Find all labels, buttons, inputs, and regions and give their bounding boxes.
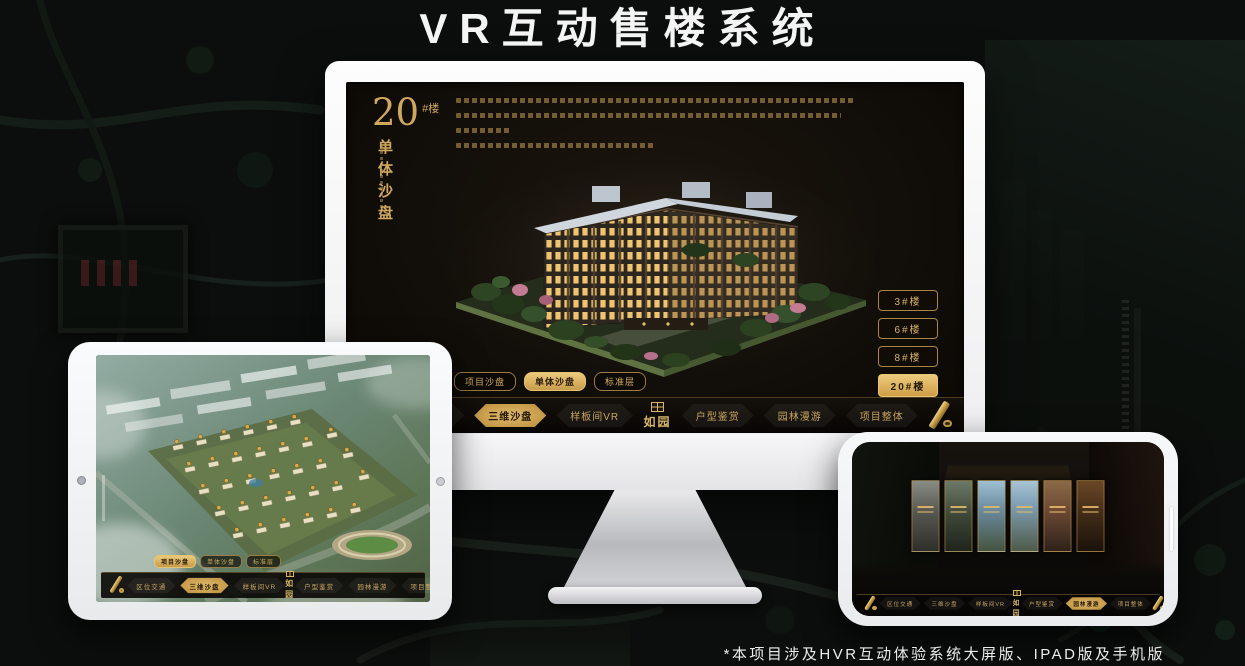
nav-group-left: 区位交通三维沙盘样板间VR bbox=[127, 577, 285, 594]
nav-item[interactable]: 户型鉴赏 bbox=[1021, 597, 1062, 611]
background-plaque-art bbox=[58, 225, 188, 333]
floor-title-row: 20 #楼 bbox=[372, 94, 439, 131]
description-text-block bbox=[456, 98, 876, 158]
phone-side-button[interactable] bbox=[1170, 507, 1173, 551]
logo-text: 如园 bbox=[1013, 597, 1022, 616]
floor-number: 20 bbox=[372, 94, 419, 131]
nav-item[interactable]: 园林漫游 bbox=[1066, 597, 1107, 611]
promo-banner: VR互动售楼系统 20 #楼 单体沙盘 bbox=[0, 0, 1245, 666]
sub-tab[interactable]: 标准层 bbox=[246, 555, 281, 568]
nav-item[interactable]: 三维沙盘 bbox=[180, 577, 228, 594]
nav-item[interactable]: 样板间VR bbox=[556, 403, 633, 428]
floor-subtitle: 单体沙盘 bbox=[374, 139, 395, 227]
scene-panel[interactable] bbox=[1011, 480, 1039, 552]
nav-group-left: 区位交通三维沙盘样板间VR bbox=[879, 597, 1012, 611]
background-photo-art bbox=[985, 40, 1245, 440]
seal-icon bbox=[286, 571, 294, 578]
logo-text: 如园 bbox=[285, 578, 295, 600]
sub-tab[interactable]: 标准层 bbox=[594, 372, 646, 391]
scene-panel[interactable] bbox=[912, 480, 940, 552]
sub-tab[interactable]: 项目沙盘 bbox=[454, 372, 516, 391]
nav-item[interactable]: 户型鉴赏 bbox=[295, 577, 343, 594]
nav-item[interactable]: 区位交通 bbox=[879, 597, 920, 611]
nav-item[interactable]: 项目整体 bbox=[846, 403, 918, 428]
nav-item[interactable]: 三维沙盘 bbox=[474, 403, 546, 428]
footnote: *本项目涉及HVR互动体验系统大屏版、IPAD版及手机版 bbox=[724, 643, 1165, 664]
nav-group-right: 户型鉴赏园林漫游项目整体 bbox=[1021, 597, 1151, 611]
nav-item[interactable]: 三维沙盘 bbox=[924, 597, 965, 611]
main-navigation: 区位交通三维沙盘样板间VR 如园 户型鉴赏园林漫游项目整体 bbox=[856, 594, 1160, 612]
tablet-device: 项目沙盘单体沙盘标准层 区位交通三维沙盘样板间VR 如园 户型鉴赏园林漫游项目整… bbox=[68, 342, 452, 620]
nav-item[interactable]: 项目整体 bbox=[401, 577, 430, 594]
ruyuan-logo: 如园 bbox=[1013, 590, 1022, 616]
monitor-base bbox=[548, 587, 762, 604]
scroll-ornament-right[interactable] bbox=[928, 403, 956, 428]
main-navigation: 区位交通三维沙盘样板间VR 如园 户型鉴赏园林漫游项目整体 bbox=[101, 572, 425, 598]
stadium bbox=[332, 530, 412, 560]
scene-panel-strip bbox=[912, 480, 1105, 552]
scene-panel[interactable] bbox=[1077, 480, 1105, 552]
seal-icon bbox=[1013, 590, 1020, 596]
scroll-ornament-left[interactable] bbox=[109, 577, 127, 593]
scene-panel[interactable] bbox=[1044, 480, 1072, 552]
scene-panel[interactable] bbox=[978, 480, 1006, 552]
nav-item[interactable]: 样板间VR bbox=[234, 577, 286, 594]
nav-item[interactable]: 区位交通 bbox=[127, 577, 175, 594]
seal-icon bbox=[651, 402, 664, 412]
nav-item[interactable]: 园林漫游 bbox=[764, 403, 836, 428]
sub-tab[interactable]: 单体沙盘 bbox=[200, 555, 242, 568]
building-selector: 3#楼6#楼8#楼20#楼 bbox=[878, 290, 938, 397]
building-3d-view[interactable] bbox=[446, 142, 876, 377]
scroll-ornament-right[interactable] bbox=[1151, 597, 1164, 611]
background-roof-art bbox=[430, 616, 630, 666]
phone-device: 区位交通三维沙盘样板间VR 如园 户型鉴赏园林漫游项目整体 bbox=[838, 432, 1178, 626]
page-title: VR互动售楼系统 bbox=[0, 0, 1245, 58]
description-line bbox=[456, 143, 656, 148]
description-line bbox=[456, 98, 856, 103]
tablet-screen[interactable]: 项目沙盘单体沙盘标准层 区位交通三维沙盘样板间VR 如园 户型鉴赏园林漫游项目整… bbox=[96, 355, 430, 602]
building-button[interactable]: 8#楼 bbox=[878, 346, 938, 367]
sub-tab[interactable]: 单体沙盘 bbox=[524, 372, 586, 391]
nav-item[interactable]: 园林漫游 bbox=[348, 577, 396, 594]
nav-group-right: 户型鉴赏园林漫游项目整体 bbox=[682, 403, 918, 428]
nav-item[interactable]: 样板间VR bbox=[968, 597, 1013, 611]
building-button[interactable]: 3#楼 bbox=[878, 290, 938, 311]
building-button[interactable]: 6#楼 bbox=[878, 318, 938, 339]
building-button[interactable]: 20#楼 bbox=[878, 374, 938, 397]
nav-item[interactable]: 项目整体 bbox=[1110, 597, 1151, 611]
background-vertical-text-art bbox=[1122, 300, 1129, 450]
phone-screen[interactable]: 区位交通三维沙盘样板间VR 如园 户型鉴赏园林漫游项目整体 bbox=[852, 442, 1164, 616]
ruyuan-logo: 如园 bbox=[643, 402, 671, 430]
nav-item[interactable]: 户型鉴赏 bbox=[682, 403, 754, 428]
sub-tab[interactable]: 项目沙盘 bbox=[154, 555, 196, 568]
nav-group-right: 户型鉴赏园林漫游项目整体 bbox=[295, 577, 430, 594]
sandbox-sub-tabs: 项目沙盘单体沙盘标准层 bbox=[154, 555, 281, 568]
sandbox-sub-tabs: 项目沙盘单体沙盘标准层 bbox=[454, 372, 646, 391]
tablet-home-button[interactable] bbox=[436, 477, 445, 486]
ruyuan-logo: 如园 bbox=[285, 571, 295, 601]
floor-title: 20 #楼 单体沙盘 bbox=[372, 94, 439, 227]
floor-unit: #楼 bbox=[422, 100, 439, 116]
scene-panel[interactable] bbox=[945, 480, 973, 552]
description-line bbox=[456, 128, 512, 133]
scroll-ornament-left[interactable] bbox=[864, 597, 879, 611]
tablet-camera bbox=[77, 476, 86, 485]
description-line bbox=[456, 113, 841, 118]
logo-text: 如园 bbox=[643, 413, 671, 430]
